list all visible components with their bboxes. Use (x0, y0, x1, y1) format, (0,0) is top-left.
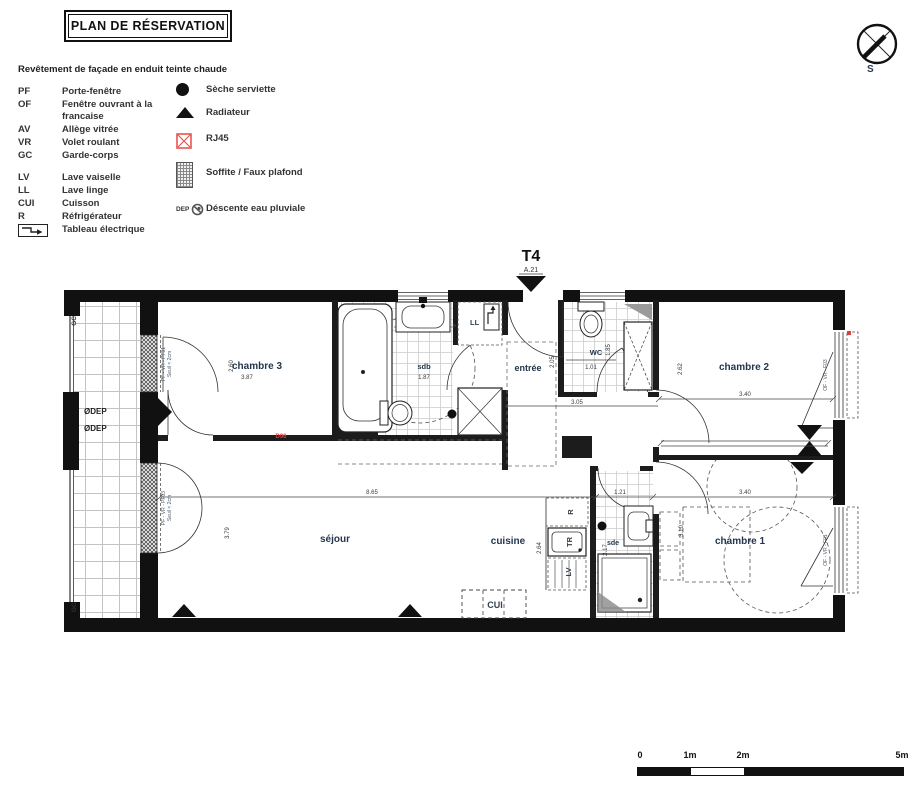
sink-label: TR (565, 536, 574, 547)
dishwasher-label: LV (564, 567, 573, 576)
dim-chambre1-w: 3.40 (739, 490, 751, 496)
balcony-tiles (74, 302, 140, 618)
dim-entree-h: 2.05 (550, 356, 556, 368)
room-label-cuisine: cuisine (491, 536, 526, 547)
balcony: GC GC ØDEP ØDEP (63, 300, 140, 618)
room-label-chambre2: chambre 2 (719, 362, 769, 373)
unit-marker: T4 A.21 (516, 248, 546, 292)
sink-tr: TR (548, 528, 586, 556)
washbasin-sdb (396, 297, 450, 332)
dim-chambre2-h: 2.62 (678, 363, 684, 375)
dim-cuisine-h: 2.64 (537, 542, 543, 554)
washing-machine-label: LL (470, 318, 480, 327)
scale-bar: 0 1m 2m 5m (637, 750, 907, 782)
room-label-chambre1: chambre 1 (715, 536, 765, 547)
opening-f01: OF - VR - F01 (823, 534, 829, 566)
floor-plan-drawing: S T4 A.21 GC GC ØDEP ØDEP (0, 0, 912, 800)
dim-sejour-w: 8.65 (366, 490, 378, 496)
dim-sejour-h: 3.79 (225, 527, 231, 539)
shower-tray (598, 554, 651, 612)
red-dot (847, 331, 851, 335)
scale-tick-0: 0 (637, 750, 642, 760)
duct (562, 436, 592, 458)
scale-tick-1m: 1m (683, 750, 696, 760)
washing-machine-zone: LL (458, 302, 502, 345)
compass-south-label: S (867, 64, 874, 75)
room-label-chambre3: chambre 3 (232, 361, 282, 372)
toilet-wc (578, 302, 604, 337)
scale-bar-graphic (637, 767, 904, 776)
closet-wc (624, 322, 652, 390)
guardrail-label-top: GC (71, 316, 78, 326)
towel-dryer-sde (598, 522, 607, 531)
dim-chambre2-w: 3.40 (739, 392, 751, 398)
opening-f03: OF - VR - F03 (823, 359, 829, 391)
scale-tick-5m: 5m (895, 750, 908, 760)
room-label-entree: entrée (514, 363, 541, 373)
french-window-chambre3 (141, 335, 161, 392)
cooktop-label: CUI (487, 600, 503, 610)
towel-dryer-sdb (448, 410, 457, 419)
unit-type-label: T4 (522, 248, 541, 265)
washbasin-sde (624, 506, 653, 546)
downpipe-label-2: ØDEP (84, 424, 107, 433)
room-label-wc: WC (590, 348, 603, 357)
guardrail-label-bottom: GC (71, 602, 78, 612)
dim-wc-w: 1.01 (585, 365, 597, 371)
dim-chambre3-h: 2.60 (229, 360, 235, 372)
room-label-sdb: sdb (417, 362, 431, 371)
entrance-arrow (516, 276, 546, 292)
opening-pf03-line2: Seuil < 2cm (167, 495, 173, 521)
downpipe-label-1: ØDEP (84, 407, 107, 416)
room-label-sejour: séjour (320, 534, 350, 545)
dim-chambre1-h: 3.10 (679, 525, 685, 537)
dim-chambre3-w: 3.87 (241, 375, 253, 381)
balcony-pier (63, 392, 79, 470)
unit-lot-label: A.21 (524, 267, 539, 274)
compass: S (858, 25, 896, 75)
dim-sde-h: 2.17 (603, 544, 609, 556)
closet-sdb (458, 388, 502, 435)
dim-hall: 3.05 (571, 400, 583, 406)
electrical-panel (484, 304, 499, 330)
red-mark-label: D96 (275, 434, 287, 440)
toilet-sdb (380, 401, 412, 425)
opening-pf01-line2: Seuil < 2cm (167, 351, 173, 377)
dim-sde-w: 1.21 (614, 490, 626, 496)
french-window-sejour (141, 463, 161, 553)
scale-labels: 0 1m 2m 5m (637, 750, 907, 763)
floor-plan-page: { "title": "PLAN DE RÉSERVATION", "facad… (0, 0, 912, 800)
fridge-label: R (566, 509, 575, 515)
dim-wc-h: 1.85 (606, 344, 612, 356)
dim-sdb-w: 1.87 (418, 375, 430, 381)
scale-tick-2m: 2m (736, 750, 749, 760)
